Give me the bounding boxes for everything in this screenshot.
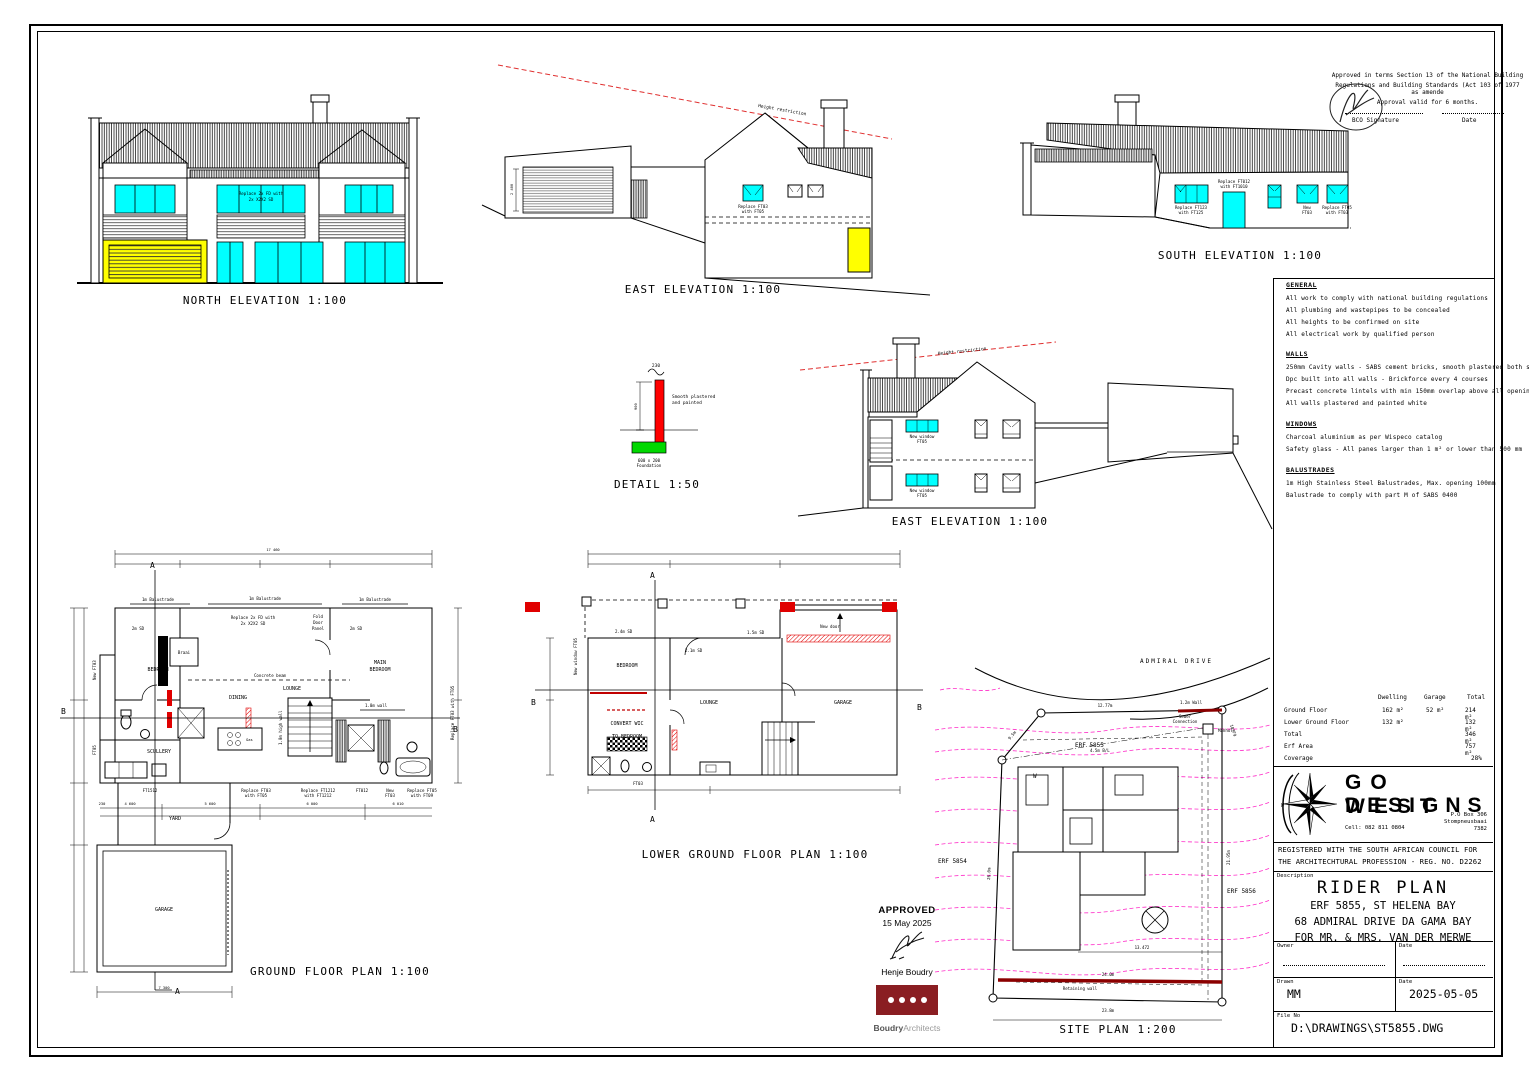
notes-balustrades-heading: BALUSTRADES xyxy=(1286,466,1491,474)
notes-windows-heading: WINDOWS xyxy=(1286,420,1491,428)
height-restriction-label-2: Height restriction xyxy=(938,346,987,357)
svg-text:with FT1212: with FT1212 xyxy=(304,793,332,798)
detail-note-1: Smooth plastered xyxy=(672,394,716,400)
svg-text:Replace 2x FD with: Replace 2x FD with xyxy=(231,615,276,620)
drawn-label: Drawn xyxy=(1277,979,1395,985)
titleblock-drawn-row: Drawn MM Date 2025-05-05 xyxy=(1273,977,1493,1012)
boudry-logo xyxy=(876,985,938,1015)
svg-text:6 000: 6 000 xyxy=(306,802,317,806)
detail-dim-top: 230 xyxy=(652,363,660,369)
svg-text:21.95m: 21.95m xyxy=(1226,850,1231,865)
east1-yellow-door xyxy=(848,228,870,272)
north-upper-windows: Replace 2x FD with 2x X2X2 SD xyxy=(115,185,393,213)
area-col-garage: Garage xyxy=(1424,694,1446,701)
svg-text:1.5m SD: 1.5m SD xyxy=(747,630,765,635)
svg-text:5 600: 5 600 xyxy=(204,802,215,806)
svg-text:B: B xyxy=(531,698,536,707)
gp-stairs xyxy=(288,698,332,756)
svg-text:B: B xyxy=(453,725,458,734)
svg-text:with FT1010: with FT1010 xyxy=(1220,184,1248,189)
drawing-subtitle-2: 68 ADMIRAL DRIVE DA GAMA BAY xyxy=(1273,916,1493,928)
svg-text:2.1m SD: 2.1m SD xyxy=(685,648,703,653)
svg-text:with FT05: with FT05 xyxy=(245,793,268,798)
svg-text:Connection: Connection xyxy=(1173,719,1198,724)
svg-text:A: A xyxy=(175,987,180,996)
drawing-title: RIDER PLAN xyxy=(1273,878,1493,898)
lp-stairs xyxy=(762,722,798,775)
svg-text:Concrete beam: Concrete beam xyxy=(254,673,287,678)
svg-text:17 460: 17 460 xyxy=(266,548,279,552)
gp-room-dining: DINING xyxy=(229,695,247,701)
detail-title: DETAIL 1:50 xyxy=(614,478,700,491)
titleblock-logo-box: W GO WEST DESIGNS Cell: 082 811 0804 P.O… xyxy=(1273,766,1493,843)
lp-new-door-label: New door xyxy=(820,624,840,629)
approval-line1: Approved in terms Section 13 of the Nati… xyxy=(1330,72,1525,79)
svg-text:New FT03: New FT03 xyxy=(92,660,97,680)
svg-text:9.5m: 9.5m xyxy=(1007,729,1018,740)
svg-text:FT05: FT05 xyxy=(917,439,927,444)
svg-text:FT03: FT03 xyxy=(633,781,643,786)
ground-floor-plan: 17 460 4 600 5 600 6 000 6 010 230 7 300… xyxy=(60,540,480,1020)
svg-text:1m Balustrade: 1m Balustrade xyxy=(249,596,282,601)
approval-signature-stamp xyxy=(1328,80,1388,135)
lower-ground-floor-plan: New door FT03 BEDROOM CONVERT WIC xyxy=(525,540,945,880)
area-table: Dwelling Garage Total Ground Floor 162 m… xyxy=(1284,694,1486,760)
lp-room-garage: GARAGE xyxy=(834,700,852,706)
wall-detail-drawing: 230 900 Smooth plastered and painted 600… xyxy=(600,358,750,500)
svg-text:4 600: 4 600 xyxy=(124,802,135,806)
svg-text:7 300: 7 300 xyxy=(158,986,169,990)
owner-date-line xyxy=(1403,965,1485,966)
north-window-label-1: Replace 2x FD with xyxy=(239,191,284,196)
approval-date-line xyxy=(1442,113,1504,114)
svg-text:2m SD: 2m SD xyxy=(132,626,145,631)
erf-label: ERF 5855 xyxy=(1075,742,1104,749)
svg-text:1.0m wall: 1.0m wall xyxy=(365,703,388,708)
gp-room-lounge: LOUNGE xyxy=(283,686,301,692)
titleblock-registered-box: REGISTERED WITH THE SOUTH AFRICAN COUNCI… xyxy=(1273,841,1493,872)
svg-text:A: A xyxy=(150,561,155,570)
north-lower-openings xyxy=(103,240,405,283)
east1-title: EAST ELEVATION 1:100 xyxy=(625,283,781,296)
east-elevation1-drawing: Height restriction 2 400 Replace FT03 wi… xyxy=(480,55,932,307)
company-cell: Cell: 082 811 0804 xyxy=(1345,825,1405,831)
company-address: P.O Box 306 Stompneusbaai 7382 xyxy=(1423,812,1487,833)
garage-door-dim: 2 400 xyxy=(510,184,514,195)
lp-room-bedroom: BEDROOM xyxy=(616,663,637,669)
registered-line2: THE ARCHITECHTURAL PROFESSION - REG. NO.… xyxy=(1278,857,1493,866)
svg-text:New window FT05: New window FT05 xyxy=(573,637,578,675)
ground-plan-title: GROUND FLOOR PLAN 1:100 xyxy=(250,965,430,978)
svg-text:2.4m SD: 2.4m SD xyxy=(615,629,633,634)
svg-text:2m SD: 2m SD xyxy=(350,626,363,631)
house-footprint: W xyxy=(1013,767,1178,950)
north-window-label-2: 2x X2X2 SD xyxy=(249,197,274,202)
svg-text:13.472: 13.472 xyxy=(1135,945,1150,950)
svg-text:FT05: FT05 xyxy=(92,745,97,755)
svg-text:6 010: 6 010 xyxy=(392,802,403,806)
svg-text:FT012: FT012 xyxy=(356,788,369,793)
east1-window-label-2: with FT05 xyxy=(742,209,765,214)
drawing-sheet: Replace 2x FD with 2x X2X2 SD NORTH ELEV… xyxy=(0,0,1529,1080)
svg-text:Door: Door xyxy=(313,620,323,625)
area-col-total: Total xyxy=(1467,694,1485,701)
svg-text:B: B xyxy=(61,707,66,716)
svg-text:Fold: Fold xyxy=(313,614,323,619)
file-value: D:\DRAWINGS\ST5855.DWG xyxy=(1291,1021,1493,1035)
lp-room-wic2: TO BEDROOM xyxy=(612,734,642,740)
notes-general-heading: GENERAL xyxy=(1286,281,1491,289)
svg-text:FT03: FT03 xyxy=(1302,210,1312,215)
svg-text:230: 230 xyxy=(99,802,106,806)
gp-room-scullery: SCULLERY xyxy=(147,749,171,755)
svg-text:1m Balustrade: 1m Balustrade xyxy=(359,597,392,602)
erf-left-label: ERF 5854 xyxy=(938,858,967,865)
drawing-subtitle-1: ERF 5855, ST HELENA BAY xyxy=(1273,900,1493,912)
date-label: Date xyxy=(1399,979,1493,985)
erf-right-label: ERF 5856 xyxy=(1227,888,1256,895)
north-elevation-title: NORTH ELEVATION 1:100 xyxy=(183,294,347,307)
drawn-value: MM xyxy=(1287,987,1395,1001)
svg-text:Braai: Braai xyxy=(178,650,191,655)
svg-text:12.77m: 12.77m xyxy=(1098,703,1113,708)
house-w-label: W xyxy=(1033,773,1037,780)
site-plan-title: SITE PLAN 1:200 xyxy=(1059,1023,1176,1036)
titleblock-file-row: File No D:\DRAWINGS\ST5855.DWG xyxy=(1273,1011,1493,1046)
svg-text:A: A xyxy=(650,815,655,824)
svg-text:FT1512: FT1512 xyxy=(143,788,158,793)
svg-text:Gas: Gas xyxy=(246,738,253,742)
svg-text:24.0m: 24.0m xyxy=(1102,972,1115,977)
description-label: Description xyxy=(1277,873,1313,879)
east2-title: EAST ELEVATION 1:100 xyxy=(892,515,1048,528)
lp-room-wic1: CONVERT WIC xyxy=(610,721,643,727)
date-value: 2025-05-05 xyxy=(1409,987,1493,1001)
gp-room-main1: MAIN xyxy=(374,660,386,666)
detail-foundation xyxy=(632,442,666,453)
registered-line1: REGISTERED WITH THE SOUTH AFRICAN COUNCI… xyxy=(1278,845,1493,854)
detail-dim-side: 900 xyxy=(634,403,638,410)
file-label: File No xyxy=(1277,1013,1493,1019)
svg-text:FT03: FT03 xyxy=(385,793,395,798)
gp-garage: GARAGE xyxy=(155,907,173,913)
svg-text:2x X2X2 SD: 2x X2X2 SD xyxy=(241,621,266,626)
lp-room-lounge: LOUNGE xyxy=(700,700,718,706)
owner-signature-line xyxy=(1283,965,1385,966)
notes-panel: GENERAL All work to comply with national… xyxy=(1286,281,1491,499)
area-col-dwelling: Dwelling xyxy=(1378,694,1407,701)
svg-text:A: A xyxy=(650,571,655,580)
road-label: ADMIRAL DRIVE xyxy=(1140,658,1213,665)
svg-text:1.0m high wall: 1.0m high wall xyxy=(278,710,283,745)
svg-text:B: B xyxy=(917,703,922,712)
gp-room-bedroom: BEDROOM xyxy=(147,667,168,673)
svg-text:with FT09: with FT09 xyxy=(411,793,434,798)
svg-text:with FT125: with FT125 xyxy=(1179,210,1204,215)
owner-date-label: Date xyxy=(1399,943,1493,949)
detail-wall xyxy=(655,380,664,444)
south-elevation-drawing: Replace FT123with FT125 Replace FT012wit… xyxy=(995,85,1360,275)
svg-text:23.8m: 23.8m xyxy=(1102,1008,1115,1013)
svg-text:FT05: FT05 xyxy=(917,493,927,498)
lower-plan-title: LOWER GROUND FLOOR PLAN 1:100 xyxy=(642,848,869,861)
east-elevation2-drawing: Height restriction New windowFT05 New wi… xyxy=(798,333,1276,538)
svg-text:1m Balustrade: 1m Balustrade xyxy=(142,597,175,602)
titleblock-owner-row: Owner Date xyxy=(1273,941,1493,978)
owner-label: Owner xyxy=(1277,943,1395,949)
approval-date-label: Date xyxy=(1462,117,1476,124)
gp-room-main2: BEDROOM xyxy=(369,667,390,673)
compass-logo: W xyxy=(1279,771,1341,837)
svg-text:Retaining wall: Retaining wall xyxy=(1063,986,1098,991)
south-title: SOUTH ELEVATION 1:100 xyxy=(1158,249,1322,262)
notes-walls-heading: WALLS xyxy=(1286,350,1491,358)
north-elevation-drawing: Replace 2x FD with 2x X2X2 SD NORTH ELEV… xyxy=(75,90,447,315)
retaining-wall xyxy=(998,980,1222,982)
site-plan: ADMIRAL DRIVE 4.5m B/L 1.2m Wall 12.77m … xyxy=(930,640,1275,1040)
titleblock-description-box: Description RIDER PLAN ERF 5855, ST HELE… xyxy=(1273,871,1493,942)
svg-text:26.0m: 26.0m xyxy=(986,867,992,880)
detail-foundation-label-2: Foundation xyxy=(637,463,662,468)
detail-note-2: and painted xyxy=(672,400,702,406)
svg-text:Panel: Panel xyxy=(312,626,325,631)
gp-yard: YARD xyxy=(169,816,181,822)
svg-text:1.2m Wall: 1.2m Wall xyxy=(1180,700,1203,705)
svg-text:with FT03: with FT03 xyxy=(1326,210,1349,215)
